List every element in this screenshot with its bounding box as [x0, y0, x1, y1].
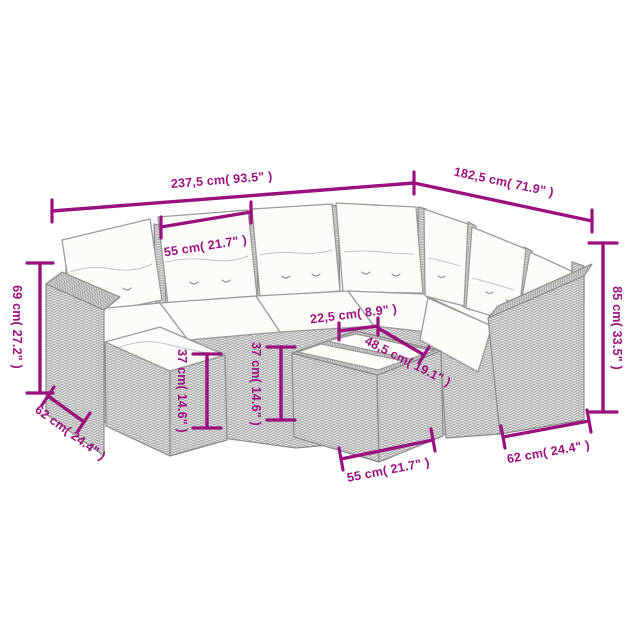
dim-overall-height: 85 cm( 33.5" ): [589, 243, 624, 412]
dim-label-table-length: 55 cm( 21.7" ): [346, 455, 431, 485]
dim-label-back-height: 69 cm( 27.2" ): [10, 285, 24, 369]
dim-label-total-width: 237,5 cm( 93.5" ): [170, 169, 273, 191]
dim-label-footstool-height: 37 cm( 14.6" ): [175, 349, 189, 433]
back-pillow: [336, 203, 423, 293]
back-pillow: [252, 204, 340, 297]
dim-label-table-height: 37 cm( 14.6" ): [249, 342, 263, 426]
sofa-drawing: [46, 203, 592, 462]
product-dimension-diagram: 237,5 cm( 93.5" ) 182,5 cm( 71.9" ) 55 c…: [0, 0, 640, 640]
dim-label-overall-height: 85 cm( 33.5" ): [610, 286, 624, 370]
dim-label-right-seat-depth: 62 cm( 24.4" ): [506, 438, 591, 466]
back-pillow: [424, 209, 468, 306]
diagram-svg: 237,5 cm( 93.5" ) 182,5 cm( 71.9" ) 55 c…: [0, 0, 640, 640]
